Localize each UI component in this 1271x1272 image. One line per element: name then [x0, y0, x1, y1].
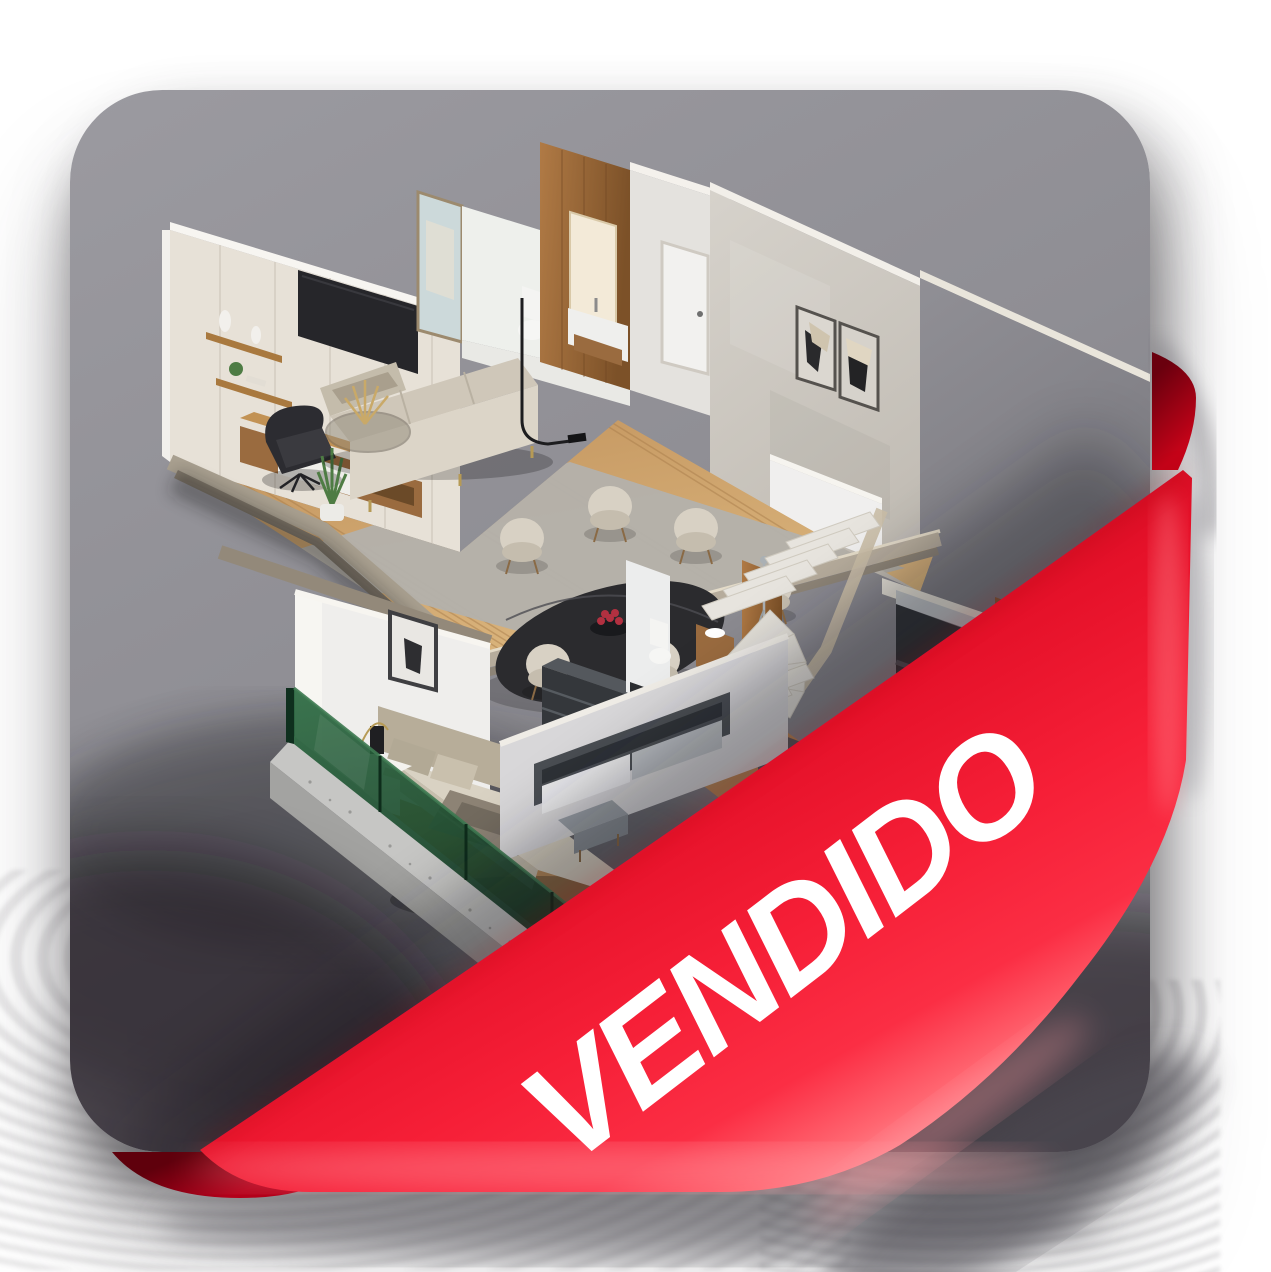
ribbon-fold-left	[112, 1152, 330, 1198]
basin	[705, 628, 725, 638]
sold-listing-image: VENDIDO	[0, 0, 1271, 1272]
fruit-bowl	[590, 620, 630, 636]
door-handle	[697, 311, 703, 317]
tv-wall-end	[162, 230, 170, 462]
mirror-reflection	[426, 220, 454, 300]
upper-bathroom	[462, 142, 630, 406]
glass-end	[286, 688, 294, 744]
framed-photo	[390, 612, 436, 690]
vase	[251, 326, 261, 344]
vase	[219, 310, 231, 332]
small-plant	[229, 362, 243, 376]
lamp-shade	[568, 433, 587, 443]
toilet-tank	[522, 286, 540, 322]
toilet-bowl	[649, 648, 671, 664]
entry-door	[662, 242, 708, 374]
decor-roller	[913, 783, 927, 797]
apartment-3d-render	[70, 90, 1150, 1152]
listing-card	[70, 90, 1150, 1152]
ribbon-fold-right	[1152, 352, 1196, 470]
chair-shadow	[262, 469, 342, 491]
